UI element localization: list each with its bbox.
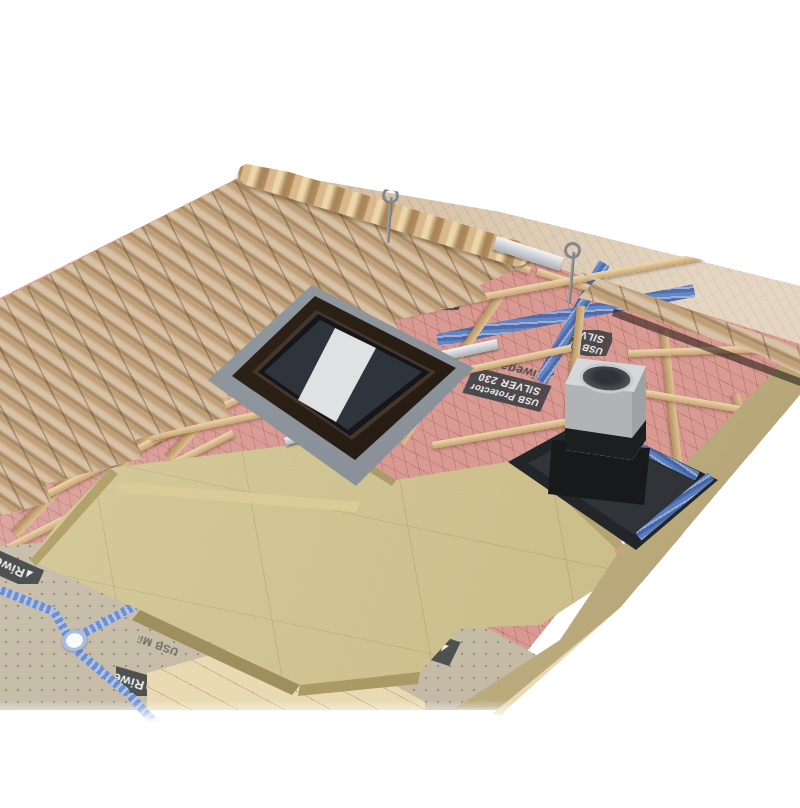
safety-anchor-eye-icon <box>564 242 581 259</box>
riwega-triangle-icon <box>25 570 34 580</box>
bottom-fade <box>0 700 800 808</box>
roof-system-illustration: USB Protector SILVER 230 Riwega USB Prot… <box>0 0 800 808</box>
